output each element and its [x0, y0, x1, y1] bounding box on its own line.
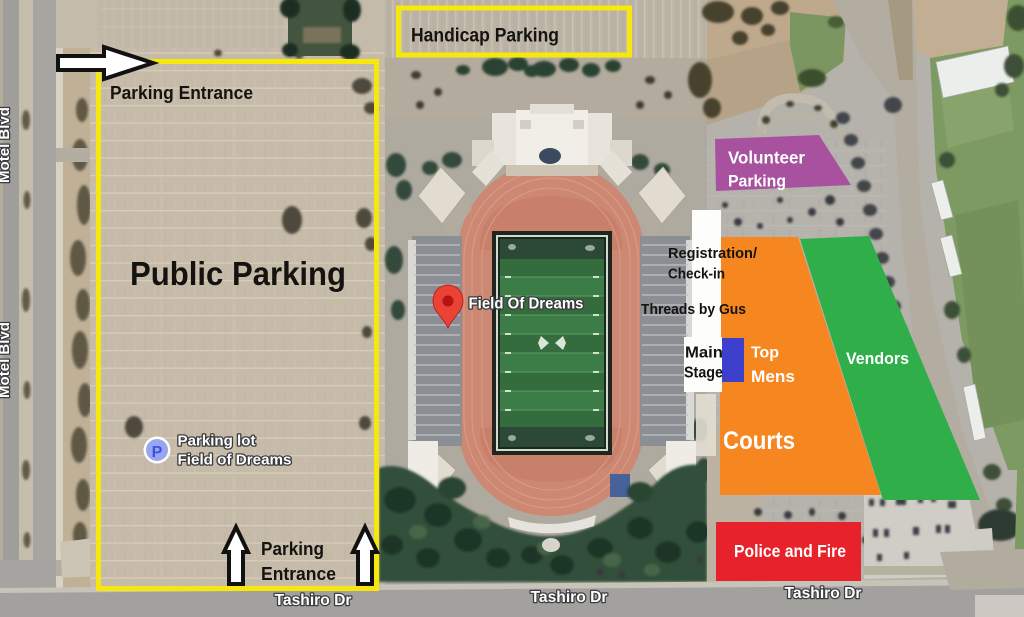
svg-text:Tashiro Dr: Tashiro Dr: [531, 589, 608, 606]
svg-text:Field of Dreams: Field of Dreams: [178, 452, 292, 469]
svg-text:P: P: [152, 444, 163, 461]
svg-text:Police and Fire: Police and Fire: [734, 541, 846, 561]
svg-text:Tashiro Dr: Tashiro Dr: [275, 592, 352, 609]
svg-text:Field Of Dreams: Field Of Dreams: [469, 296, 584, 313]
svg-text:Public Parking: Public Parking: [130, 255, 346, 292]
svg-text:Parking: Parking: [728, 172, 786, 191]
svg-text:Courts: Courts: [723, 427, 795, 455]
svg-text:Top: Top: [751, 345, 779, 362]
svg-text:Main: Main: [685, 345, 723, 362]
svg-text:Check-in: Check-in: [668, 267, 725, 283]
svg-text:Threads by Gus: Threads by Gus: [641, 302, 746, 318]
svg-text:Registration/: Registration/: [668, 245, 758, 262]
svg-text:Parking Entrance: Parking Entrance: [110, 83, 253, 103]
svg-text:Vendors: Vendors: [846, 349, 909, 368]
svg-text:Motel Blvd: Motel Blvd: [0, 107, 13, 183]
svg-text:Parking: Parking: [261, 539, 324, 559]
svg-text:Volunteer: Volunteer: [728, 148, 805, 168]
svg-text:Mens: Mens: [751, 368, 795, 386]
svg-text:Handicap Parking: Handicap Parking: [411, 26, 559, 47]
svg-text:Stage: Stage: [684, 365, 723, 382]
svg-text:Tashiro Dr: Tashiro Dr: [785, 585, 862, 602]
svg-text:Motel Blvd: Motel Blvd: [0, 322, 13, 398]
svg-text:Entrance: Entrance: [261, 564, 336, 584]
svg-text:Parking lot: Parking lot: [178, 433, 256, 450]
